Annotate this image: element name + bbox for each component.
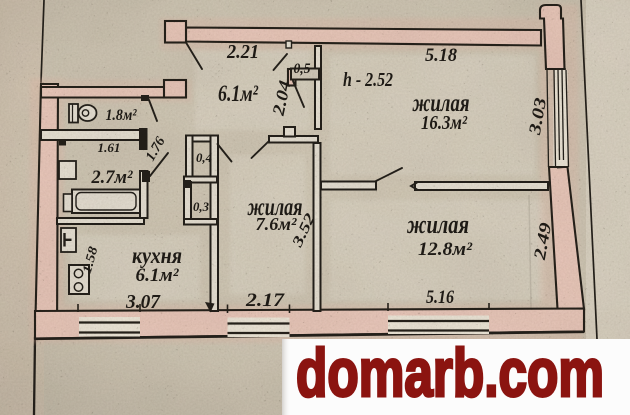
svg-text:domarb.com: domarb.com — [296, 334, 604, 411]
